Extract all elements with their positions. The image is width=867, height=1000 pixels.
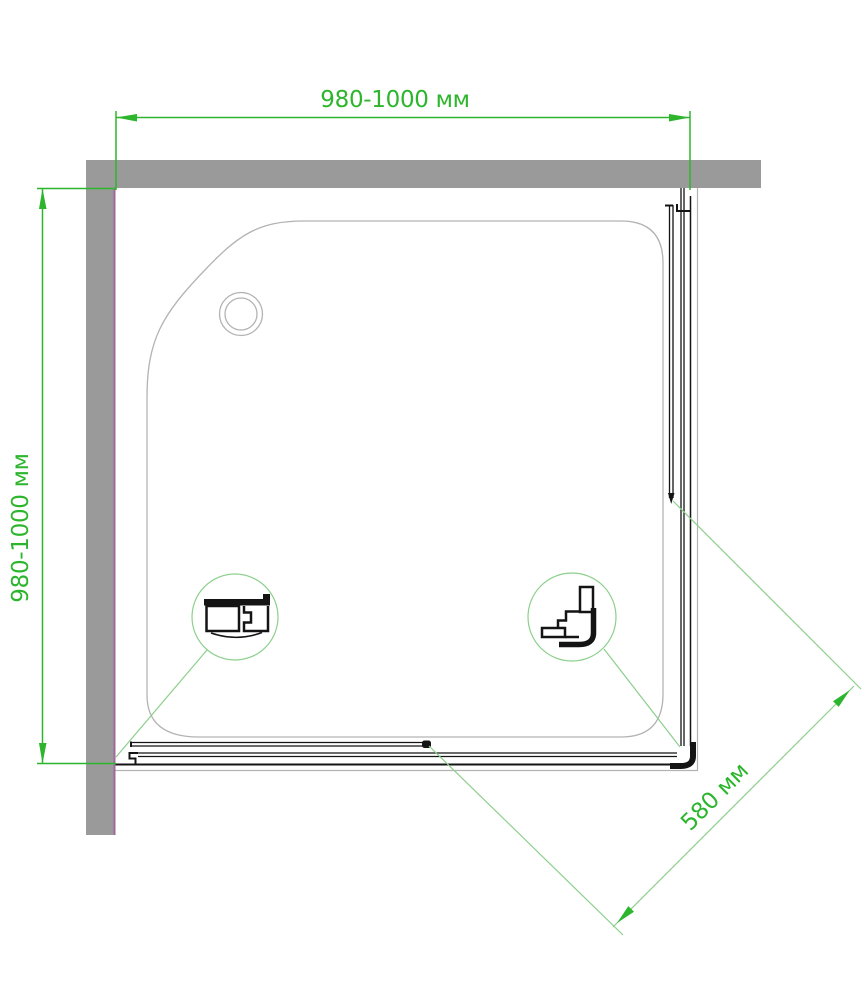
tray-outline (147, 221, 663, 737)
shower-tray (147, 221, 663, 737)
drain-outer-circle (220, 293, 263, 336)
detail-circle-left (192, 574, 278, 660)
dimension-label-depth: 980-1000 мм (8, 453, 34, 602)
dimension-label-width: 980-1000 мм (320, 87, 469, 113)
corner-profile-section (542, 587, 594, 645)
leader-line-left (116, 650, 207, 757)
drain-inner-circle (225, 298, 257, 330)
wall-profile-section (204, 594, 270, 637)
detail-circle-right (528, 573, 616, 661)
sliding-door-right (665, 205, 675, 504)
walls (86, 160, 761, 835)
wall-left (86, 160, 114, 835)
technical-drawing: 980-1000 мм 980-1000 мм 580 мм (0, 0, 867, 1000)
dimension-diagonal (429, 501, 861, 935)
sliding-door-bottom (116, 741, 699, 771)
fixed-side-panel (670, 188, 698, 770)
leader-line-right (604, 649, 680, 747)
detail-callout-left (116, 574, 278, 757)
wall-top (86, 160, 761, 188)
drawing-linework (0, 0, 867, 1000)
rail-left-step (130, 753, 139, 765)
